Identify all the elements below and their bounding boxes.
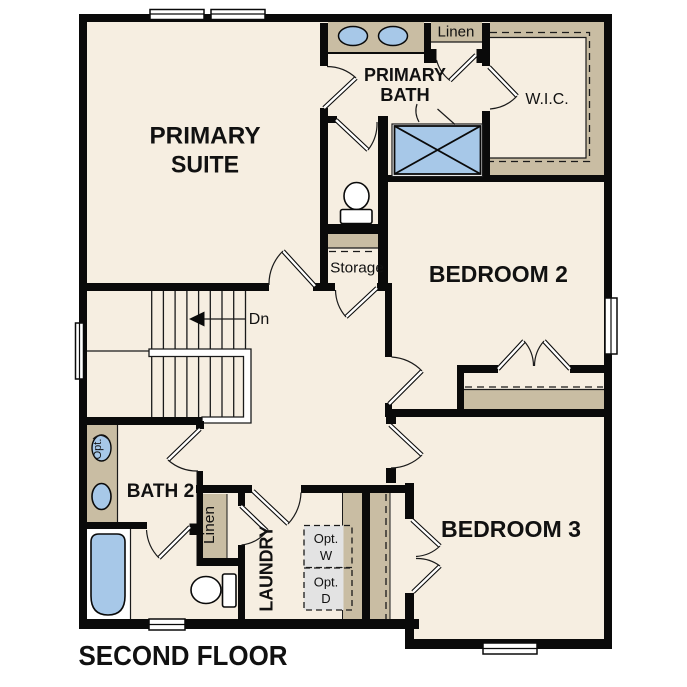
- svg-text:SECOND FLOOR: SECOND FLOOR: [79, 640, 288, 671]
- svg-text:BATH 2: BATH 2: [127, 481, 194, 502]
- svg-text:Opt.: Opt.: [314, 531, 339, 546]
- svg-text:SUITE: SUITE: [171, 152, 239, 179]
- svg-text:BEDROOM 2: BEDROOM 2: [429, 261, 568, 287]
- svg-text:Opt.: Opt.: [314, 575, 339, 590]
- svg-text:D: D: [321, 591, 330, 606]
- svg-text:Storage: Storage: [330, 260, 384, 277]
- svg-text:Opt.: Opt.: [92, 439, 104, 460]
- svg-text:LAUNDRY: LAUNDRY: [257, 526, 277, 612]
- svg-text:W.I.C.: W.I.C.: [525, 91, 568, 108]
- svg-text:Linen: Linen: [438, 24, 475, 41]
- svg-text:W: W: [320, 548, 333, 563]
- svg-text:BATH: BATH: [380, 85, 429, 105]
- svg-text:Dn: Dn: [249, 311, 269, 328]
- svg-text:Linen: Linen: [201, 506, 218, 544]
- svg-text:BEDROOM 3: BEDROOM 3: [441, 516, 581, 542]
- svg-text:PRIMARY: PRIMARY: [364, 65, 446, 85]
- svg-text:PRIMARY: PRIMARY: [150, 123, 261, 150]
